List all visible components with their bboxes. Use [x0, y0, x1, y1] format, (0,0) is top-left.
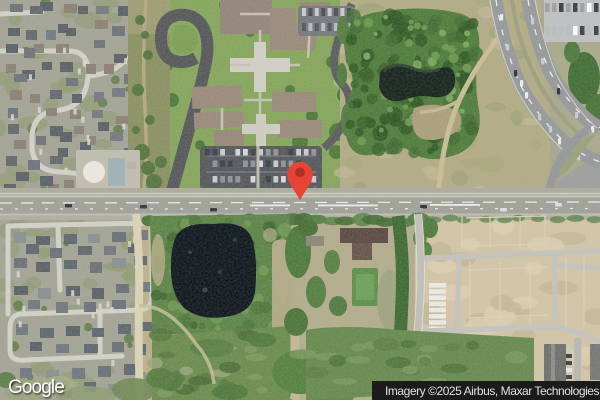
svg-text:Imagery ©2025 Airbus, Maxar Te: Imagery ©2025 Airbus, Maxar Technologies — [385, 384, 600, 398]
svg-text:Google: Google — [8, 377, 64, 398]
